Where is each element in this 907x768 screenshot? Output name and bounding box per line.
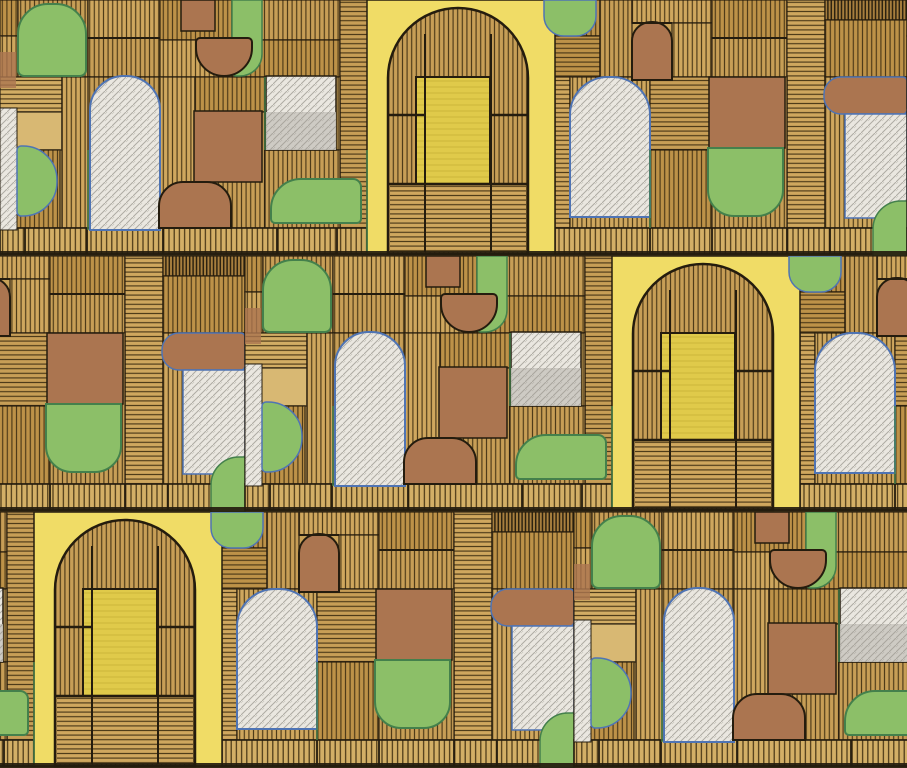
green-half-disc-top-2 [544, 0, 596, 36]
hatch-texture [800, 333, 815, 484]
white-sliver-left-edge-pencil-shading [574, 620, 591, 742]
pattern-strip [0, 256, 245, 512]
hatch-texture [712, 0, 787, 38]
white-arch-1-pencil-shading [335, 332, 405, 486]
brown-wash-left-edge [245, 308, 261, 344]
brown-rounded-bar-right [824, 77, 907, 114]
hatch-texture [574, 512, 592, 548]
hatch-texture [317, 662, 379, 740]
green-half-disc-top-2 [211, 512, 263, 548]
hatch-texture [307, 333, 335, 484]
hatch-texture [632, 0, 712, 23]
hatch-texture [440, 333, 510, 368]
hatch-texture [555, 77, 570, 228]
hatch-texture [88, 38, 160, 77]
hatch-texture [492, 532, 574, 589]
green-arch-top-left [592, 516, 660, 588]
brown-rect-top [426, 256, 460, 287]
row-bottom-ink-line [245, 507, 907, 512]
bottom-band-hatch [222, 740, 574, 766]
brown-rect-top [755, 512, 789, 543]
hatch-texture [787, 0, 825, 228]
row-bottom-ink-line [0, 507, 245, 512]
white-arch-1-pencil-shading [664, 588, 734, 742]
bottom-band-hatch [0, 484, 245, 510]
bottom-band-hatch [574, 740, 907, 766]
hatch-texture [672, 23, 712, 77]
small-brown-arch [632, 22, 672, 80]
hand-drawn-geometric-pattern-image [0, 0, 907, 768]
brown-square-2 [709, 77, 785, 148]
pattern-row-3 [0, 512, 907, 768]
gray-rect-mid-lower-pencil-shading [0, 624, 3, 662]
hatch-texture [650, 77, 712, 150]
brown-square-1 [439, 367, 507, 438]
hatch-texture [636, 589, 664, 740]
hatch-texture [845, 256, 877, 333]
green-bar-1 [271, 179, 361, 223]
hatch-texture [163, 256, 245, 276]
yellow-inner-door-marker-streaks [661, 333, 735, 440]
hatch-texture [88, 0, 160, 38]
pattern-row-2 [0, 256, 907, 512]
brown-wash-left-edge [574, 564, 590, 600]
bottom-band-hatch [245, 484, 613, 510]
bottom-band-hatch [555, 228, 907, 254]
bottom-band-hatch [0, 228, 368, 254]
row-bottom-ink-line [574, 763, 907, 768]
pattern-strip [574, 512, 907, 768]
brown-blob-bottom [733, 694, 805, 740]
row-bottom-ink-line [0, 763, 574, 768]
green-half-disc-top-2 [789, 256, 841, 292]
brown-rounded-bar-right [491, 589, 574, 626]
pattern-strip [0, 0, 907, 256]
hatched-arch-floor-hatch [390, 184, 526, 252]
hatch-texture [163, 276, 245, 333]
green-bar-1 [516, 435, 606, 479]
hatch-texture [379, 512, 454, 550]
hatch-texture [0, 256, 50, 279]
artwork-frame [0, 0, 907, 768]
green-bar-1 [0, 691, 28, 735]
green-arch-top-left [18, 4, 86, 76]
hatch-texture [245, 256, 263, 292]
white-arch-2-pencil-shading [237, 589, 317, 729]
green-under-square-2 [46, 404, 121, 472]
brown-blob-bottom [404, 438, 476, 484]
white-sliver-left-edge-pencil-shading [245, 364, 262, 486]
hatch-texture [492, 512, 574, 532]
bottom-band-hatch [0, 740, 35, 766]
white-sliver-left-edge-pencil-shading [0, 108, 17, 230]
pattern-strip [245, 256, 907, 512]
hatch-texture [299, 512, 379, 535]
hatch-texture [317, 589, 379, 662]
brown-blob-bottom [159, 182, 231, 228]
gray-rect-mid-lower-pencil-shading [511, 368, 581, 406]
hatch-texture [267, 512, 299, 589]
hatch-texture [895, 333, 907, 406]
hatch-texture [0, 512, 7, 552]
hatch-texture [600, 0, 632, 77]
hatch-texture [50, 294, 125, 334]
small-brown-arch [877, 278, 907, 336]
hatch-texture [379, 550, 454, 590]
hatch-texture [195, 77, 265, 112]
hatch-texture [62, 77, 90, 228]
pattern-row-1 [0, 0, 907, 256]
hatched-arch-floor-hatch [635, 440, 771, 508]
brown-square-1 [768, 623, 836, 694]
brown-square-2 [47, 333, 123, 404]
brown-square-1 [194, 111, 262, 182]
green-under-square-2 [375, 660, 450, 728]
hatch-texture [650, 150, 712, 228]
hatch-texture [825, 20, 907, 77]
hatch-texture [895, 406, 907, 484]
yellow-inner-door-marker-streaks [416, 77, 490, 184]
hatch-texture [454, 512, 492, 740]
hatch-texture [0, 552, 7, 589]
hatch-texture [125, 256, 163, 484]
hatched-arch-floor-hatch [57, 696, 193, 764]
hatch-texture [333, 294, 405, 333]
hatch-texture [662, 512, 734, 550]
hatch-texture [10, 279, 50, 333]
white-arch-1-pencil-shading [90, 76, 160, 230]
hatch-texture [222, 589, 237, 740]
hatch-texture [825, 0, 907, 20]
green-arch-top-left [263, 260, 331, 332]
white-arch-2-pencil-shading [815, 333, 895, 473]
white-arch-2-pencil-shading [570, 77, 650, 217]
hatch-texture [0, 0, 18, 36]
hatch-texture [50, 256, 125, 294]
green-under-square-2 [708, 148, 783, 216]
yellow-inner-door-marker-streaks [83, 589, 157, 696]
small-brown-arch [299, 534, 339, 592]
hatch-texture [769, 589, 839, 624]
hatch-texture [662, 550, 734, 589]
gray-rect-mid-lower-pencil-shading [266, 112, 336, 150]
bottom-band-hatch [800, 484, 907, 510]
row-bottom-ink-line [0, 251, 907, 256]
hatch-texture [712, 38, 787, 78]
hatch-texture [877, 256, 907, 279]
brown-rect-top [181, 0, 215, 31]
hatch-texture [339, 535, 379, 589]
brown-rounded-bar-right [162, 333, 245, 370]
hatch-texture [333, 256, 405, 294]
brown-square-2 [376, 589, 452, 660]
hatch-texture [0, 406, 50, 484]
gray-rect-mid-lower-pencil-shading [840, 624, 907, 662]
brown-wash-left-edge [0, 52, 16, 88]
pattern-strip [0, 512, 574, 768]
hatch-texture [0, 333, 50, 406]
